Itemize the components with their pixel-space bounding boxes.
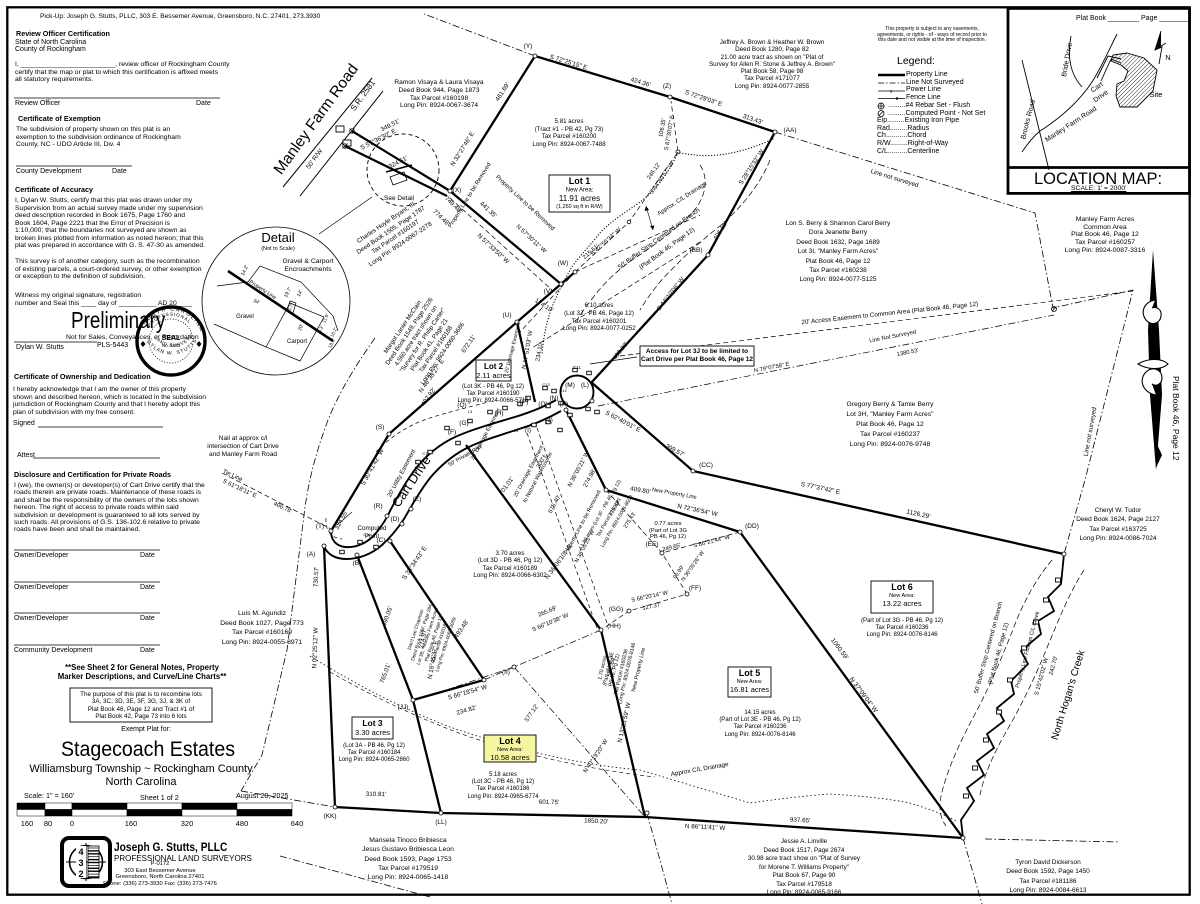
svg-text:(JJ): (JJ) <box>398 704 409 711</box>
svg-text:(R): (R) <box>373 503 382 510</box>
svg-text:Lot 2: Lot 2 <box>484 362 504 371</box>
svg-text:2.11 acres: 2.11 acres <box>476 371 511 380</box>
svg-text:(V): (V) <box>544 288 553 295</box>
svg-text:160: 160 <box>21 819 34 828</box>
svg-text:937.65': 937.65' <box>790 816 811 824</box>
svg-text:160: 160 <box>125 819 138 828</box>
svg-text:Computed: Computed <box>357 525 387 532</box>
svg-text:11.91 acres: 11.91 acres <box>559 194 600 203</box>
svg-text:(C): (C) <box>376 537 385 544</box>
svg-text:(1,250 sq ft in R/W): (1,250 sq ft in R/W) <box>556 204 603 210</box>
svg-text:(D): (D) <box>390 516 399 523</box>
svg-text:4: 4 <box>78 847 83 857</box>
svg-text:Lot 5: Lot 5 <box>739 668 761 678</box>
svg-text:(A): (A) <box>307 551 316 558</box>
svg-text:Gravel: Gravel <box>236 314 254 320</box>
svg-text:Site: Site <box>1150 90 1163 99</box>
svg-text:(II): (II) <box>502 669 510 676</box>
svg-text:intersection of Cart Drive: intersection of Cart Drive <box>207 443 279 450</box>
svg-text:New Area:: New Area: <box>566 188 594 194</box>
svg-text:640: 640 <box>291 819 304 828</box>
svg-text:13.22 acres: 13.22 acres <box>882 599 921 608</box>
svg-text:Nail at approx c/l: Nail at approx c/l <box>219 435 268 442</box>
svg-text:(KK): (KK) <box>324 813 337 820</box>
svg-text:(Y): (Y) <box>524 43 533 50</box>
svg-text:(FF): (FF) <box>689 585 701 592</box>
svg-text:3.30 acres: 3.30 acres <box>355 728 390 737</box>
svg-text:Plat Book 46, Page 12: Plat Book 46, Page 12 <box>1171 376 1181 461</box>
svg-text:(CC): (CC) <box>699 462 713 469</box>
svg-text:(F): (F) <box>448 429 456 436</box>
svg-text:(AA): (AA) <box>784 127 797 134</box>
svg-text:(H): (H) <box>494 410 503 417</box>
svg-text:Lot 3: Lot 3 <box>362 718 383 728</box>
svg-text:C11: C11 <box>573 365 581 370</box>
svg-text:L4: L4 <box>514 428 519 433</box>
svg-text:Carport: Carport <box>287 339 307 345</box>
svg-text:(E): (E) <box>413 496 422 503</box>
svg-text:(G): (G) <box>459 420 468 427</box>
svg-text:Lot 6: Lot 6 <box>891 582 913 592</box>
svg-text:Detail: Detail <box>261 230 294 245</box>
svg-text:80: 80 <box>44 819 52 828</box>
svg-text:(Not to Scale): (Not to Scale) <box>261 246 295 252</box>
svg-text:L3: L3 <box>468 409 473 414</box>
svg-text:(J): (J) <box>545 417 553 424</box>
svg-text:16.81 acres: 16.81 acres <box>730 685 769 694</box>
svg-text:(LL): (LL) <box>435 819 447 826</box>
svg-text:(I): (I) <box>525 427 531 434</box>
svg-text:No. 5443: No. 5443 <box>162 343 181 348</box>
svg-text:320: 320 <box>181 819 194 828</box>
svg-text:480: 480 <box>236 819 249 828</box>
svg-text:730.57': 730.57' <box>313 567 321 588</box>
svg-text:(W): (W) <box>558 260 568 267</box>
svg-text:and Manley Farm Road: and Manley Farm Road <box>209 451 277 458</box>
svg-text:N: N <box>1165 53 1170 62</box>
svg-text:Lot 1: Lot 1 <box>569 176 591 186</box>
svg-text:0: 0 <box>70 819 74 828</box>
svg-text:(T): (T) <box>316 523 324 530</box>
